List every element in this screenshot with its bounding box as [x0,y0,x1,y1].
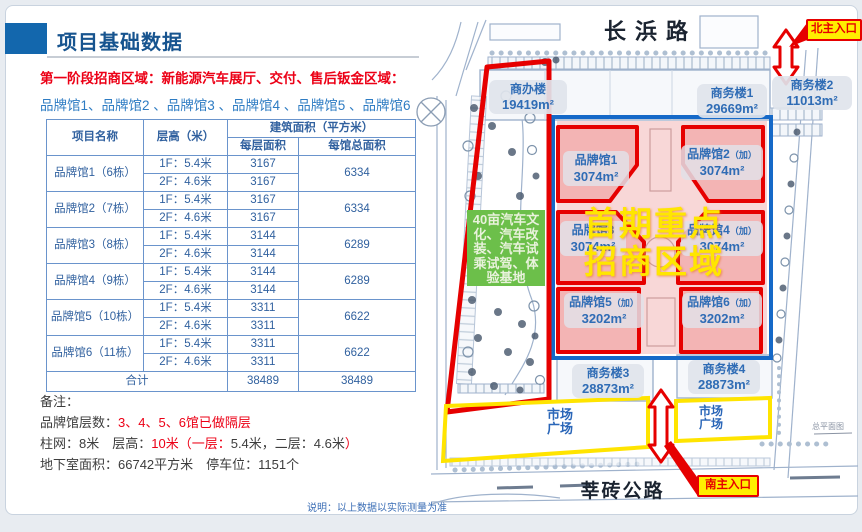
building-name: 商务楼2 [772,78,852,93]
building-name: 商办楼 [489,82,567,97]
office-building-label: 商务楼1 29669m² [697,84,767,118]
table-cell: 1F：5.4米 [144,228,228,246]
pavilion-name: 品牌馆6（加） [682,295,762,311]
table-cell: 2F：4.6米 [144,246,228,264]
col-header-area-group: 建筑面积（平方米） [228,120,416,138]
pavilion-label: 品牌馆5（加） 3202m² [564,293,644,328]
pavilion-area: 3202m² [682,311,762,326]
phase-heading: 第一阶段招商区域：新能源汽车展厅、交付、售后钣金区域： [40,67,430,87]
note-floors-red: 3、4、5、6馆已做隔层 [118,415,251,430]
pavilion-name-cell: 品牌馆5（10栋） [47,300,144,336]
table-cell: 3167 [228,192,299,210]
total-area-cell: 6622 [299,336,416,372]
note-part: 5.4米，二层：4.6米 [231,436,345,451]
table-cell: 3311 [228,336,299,354]
table-cell: 3144 [228,264,299,282]
building-name: 商务楼4 [688,362,760,377]
total-area-cell: 6289 [299,228,416,264]
table-cell: 2F：4.6米 [144,354,228,372]
note-structure-parts: 柱网：8米 层高：10米（一层：5.4米，二层：4.6米） [40,433,358,452]
key-investment-highlight: 首期重点 招商区域 [556,205,752,281]
table-cell: 1F：5.4米 [144,156,228,174]
pavilion-name: 品牌馆2（加） [681,147,763,163]
col-header-height: 层高（米） [144,120,228,156]
table-row: 品牌馆6（11栋）1F：5.4米33116622 [47,336,416,354]
table-cell: 3144 [228,228,299,246]
page-title: 项目基础数据 [57,26,183,55]
note-floors-prefix: 品牌馆层数： [40,415,118,430]
notes-label: 备注： [40,391,79,410]
pavilion-name-cell: 品牌馆3（8栋） [47,228,144,264]
col-header-total-area: 每馆总面积 [299,138,416,156]
table-cell: 2F：4.6米 [144,318,228,336]
table-cell: 2F：4.6米 [144,210,228,228]
table-cell: 2F：4.6米 [144,174,228,192]
road-name-north: 长浜路 [568,14,733,46]
total-label-cell: 合计 [47,372,228,392]
building-area: 19419m² [489,97,567,112]
table-row: 品牌馆1（6栋）1F：5.4米31676334 [47,156,416,174]
pavilion-name: 品牌馆5（加） [564,295,644,311]
project-table-body: 品牌馆1（6栋）1F：5.4米316763342F：4.6米3167品牌馆2（7… [47,156,416,392]
office-building-label: 商务楼3 28873m² [572,364,644,398]
table-row: 品牌馆4（9栋）1F：5.4米31446289 [47,264,416,282]
note-part: 柱网：8米 层高： [40,436,151,451]
table-cell: 1F：5.4米 [144,192,228,210]
total-area-cell: 6289 [299,264,416,300]
table-cell: 2F：4.6米 [144,282,228,300]
building-area: 28873m² [572,381,644,396]
table-cell: 38489 [228,372,299,392]
highlight-line2: 招商区域 [556,243,752,281]
site-plan-caption: 总平面图 [812,421,844,432]
table-cell: 38489 [299,372,416,392]
project-table-head: 项目名称 层高（米） 建筑面积（平方米） 每层面积 每馆总面积 [47,120,416,156]
total-area-cell: 6334 [299,192,416,228]
col-header-name: 项目名称 [47,120,144,156]
road-name-south: 莘砖公路 [560,476,685,503]
pavilion-name-cell: 品牌馆6（11栋） [47,336,144,372]
table-cell: 3311 [228,300,299,318]
note-part: 10米 [151,436,178,451]
table-row: 品牌馆3（8栋）1F：5.4米31446289 [47,228,416,246]
market-plaza-label: 市场广场 [541,408,579,436]
note-part: ） [345,436,358,451]
table-cell: 3167 [228,210,299,228]
building-area: 11013m² [772,93,852,108]
title-accent-bar [5,23,47,54]
office-building-label: 商务楼4 28873m² [688,360,760,394]
halls-list: 品牌馆1、品牌馆2 、品牌馆3 、品牌馆4 、品牌馆5 、品牌馆6 [40,94,430,114]
col-header-floor-area: 每层面积 [228,138,299,156]
table-cell: 1F：5.4米 [144,336,228,354]
north-entrance-label: 北主入口 [806,19,862,41]
table-cell: 3144 [228,282,299,300]
total-area-cell: 6622 [299,300,416,336]
south-entrance-label: 南主入口 [697,475,759,497]
table-cell: 3311 [228,318,299,336]
total-area-cell: 6334 [299,156,416,192]
title-underline [47,56,419,58]
table-cell: 3167 [228,174,299,192]
table-total-row: 合计3848938489 [47,372,416,392]
pavilion-area: 3074m² [563,169,629,184]
table-row: 品牌馆5（10栋）1F：5.4米33116622 [47,300,416,318]
data-disclaimer: 说明：以上数据以实际测量为准 [307,499,447,514]
market-plaza-label: 市场广场 [693,405,729,431]
pavilion-label: 品牌馆6（加） 3202m² [682,293,762,328]
note-part: （一层： [179,436,231,451]
pavilion-name-cell: 品牌馆1（6栋） [47,156,144,192]
building-name: 商务楼1 [697,86,767,101]
note-basement: 地下室面积：66742平方米 停车位：1151个 [40,454,299,473]
table-row: 品牌馆2（7栋）1F：5.4米31676334 [47,192,416,210]
pavilion-area: 3074m² [681,163,763,178]
project-table: 项目名称 层高（米） 建筑面积（平方米） 每层面积 每馆总面积 品牌馆1（6栋）… [46,119,416,392]
highlight-line1: 首期重点 [556,205,752,243]
office-building-label: 商务楼2 11013m² [772,76,852,110]
note-floors: 品牌馆层数：3、4、5、6馆已做隔层 [40,412,251,431]
table-cell: 3311 [228,354,299,372]
building-area: 28873m² [688,377,760,392]
pavilion-label: 品牌馆2（加） 3074m² [681,145,763,180]
table-cell: 3167 [228,156,299,174]
building-area: 29669m² [697,101,767,116]
table-cell: 1F：5.4米 [144,300,228,318]
auto-culture-zone: 40亩汽车文化、汽车改装、汽车试乘试驾、体验基地 [467,210,545,286]
table-cell: 3144 [228,246,299,264]
pavilion-name: 品牌馆1 [563,153,629,169]
building-name: 商务楼3 [572,366,644,381]
pavilion-name-cell: 品牌馆2（7栋） [47,192,144,228]
pavilion-area: 3202m² [564,311,644,326]
table-cell: 1F：5.4米 [144,264,228,282]
pavilion-name-cell: 品牌馆4（9栋） [47,264,144,300]
office-building-label: 商办楼 19419m² [489,80,567,114]
pavilion-label: 品牌馆1 3074m² [563,151,629,186]
